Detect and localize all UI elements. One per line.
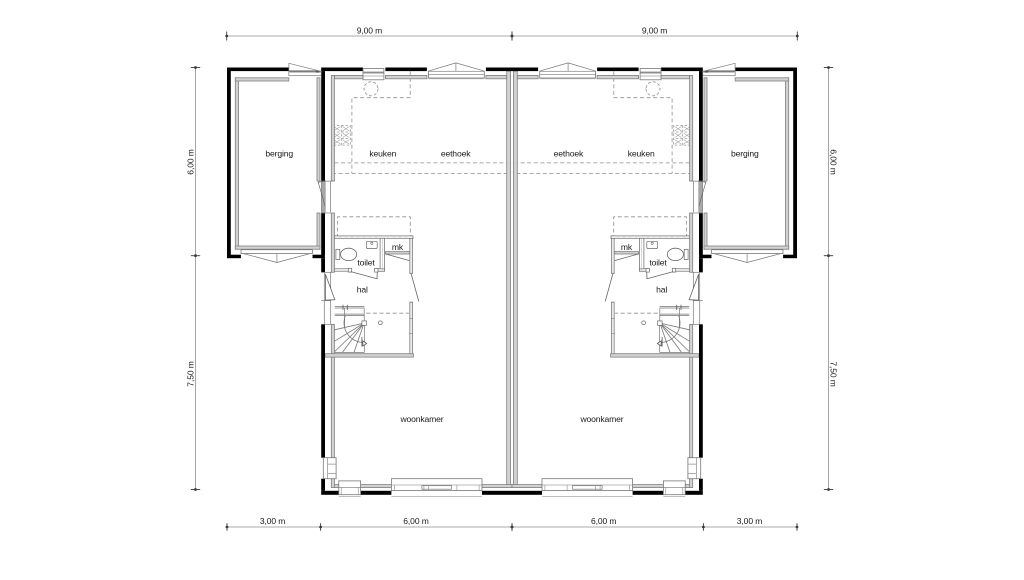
svg-text:toilet: toilet	[357, 257, 375, 267]
svg-text:6,00 m: 6,00 m	[403, 516, 428, 526]
svg-text:mk: mk	[621, 242, 633, 252]
svg-text:berging: berging	[731, 149, 759, 159]
svg-text:keuken: keuken	[628, 149, 655, 159]
svg-text:7,50 m: 7,50 m	[186, 361, 196, 386]
svg-text:6,00 m: 6,00 m	[829, 149, 839, 174]
svg-text:woonkamer: woonkamer	[579, 414, 623, 424]
svg-text:hal: hal	[656, 285, 667, 295]
svg-text:9,00 m: 9,00 m	[357, 26, 382, 36]
svg-text:3,00 m: 3,00 m	[260, 516, 285, 526]
svg-text:berging: berging	[265, 149, 293, 159]
svg-text:6,00 m: 6,00 m	[186, 149, 196, 174]
svg-text:eethoek: eethoek	[441, 149, 471, 159]
svg-text:keuken: keuken	[369, 149, 396, 159]
svg-text:hal: hal	[357, 285, 368, 295]
svg-text:9,00 m: 9,00 m	[642, 26, 667, 36]
svg-text:toilet: toilet	[649, 257, 667, 267]
svg-text:6,00 m: 6,00 m	[591, 516, 616, 526]
svg-text:eethoek: eethoek	[554, 149, 584, 159]
svg-text:woonkamer: woonkamer	[399, 414, 443, 424]
svg-text:mk: mk	[392, 242, 404, 252]
svg-text:3,00 m: 3,00 m	[737, 516, 762, 526]
svg-text:7,50 m: 7,50 m	[829, 361, 839, 386]
